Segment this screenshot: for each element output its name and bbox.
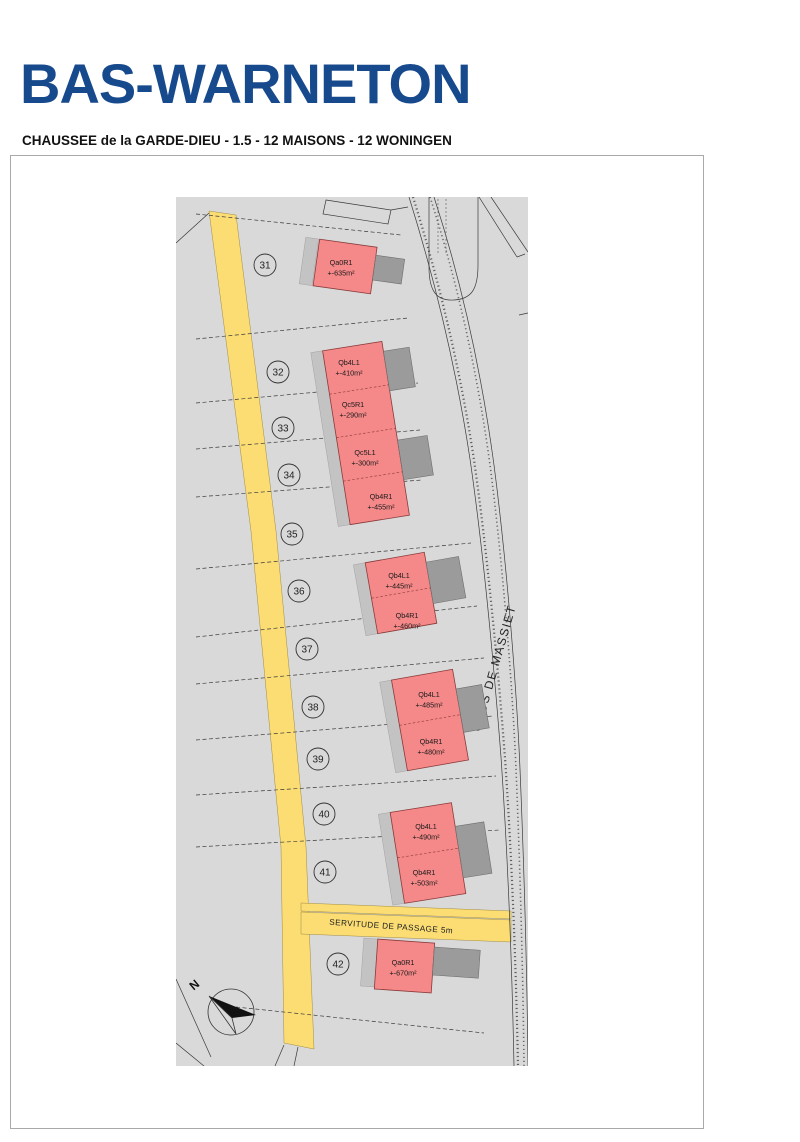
house-label: Qb4L1+-445m² — [386, 571, 414, 591]
house-label: Qc5L1+-300m² — [352, 448, 380, 468]
page-title: BAS-WARNETON — [20, 56, 471, 112]
site-plan: SERVITUDE DE PASSAGE 5m — [176, 197, 528, 1066]
lot-number: 40 — [318, 810, 330, 821]
house-label: Qa0R1+-670m² — [390, 958, 418, 978]
plan-frame: SERVITUDE DE PASSAGE 5m — [10, 155, 704, 1129]
garage-block — [432, 947, 480, 978]
lot-number: 33 — [277, 424, 289, 435]
lot-number: 35 — [286, 530, 298, 541]
lot-number: 37 — [301, 645, 313, 656]
house-label: Qa0R1+-635m² — [328, 258, 356, 278]
garage-block — [398, 435, 434, 479]
garage-block — [372, 255, 404, 284]
lot-number: 42 — [332, 960, 344, 971]
page-subtitle: CHAUSSEE de la GARDE-DIEU - 1.5 - 12 MAI… — [22, 133, 452, 148]
lot-number: 34 — [283, 471, 295, 482]
page: BAS-WARNETON CHAUSSEE de la GARDE-DIEU -… — [0, 0, 800, 1142]
lot-number: 39 — [312, 755, 324, 766]
house-label: Qb4L1+-485m² — [416, 690, 444, 710]
lot-number: 38 — [307, 703, 319, 714]
house-label: Qb4L1+-410m² — [336, 358, 364, 378]
lot-number: 41 — [319, 868, 331, 879]
lot-number: 32 — [272, 368, 284, 379]
house-label: Qb4R1+-480m² — [418, 737, 446, 757]
house-label: Qc5R1+-290m² — [340, 400, 368, 420]
lot-number: 31 — [259, 261, 271, 272]
garage-block — [426, 556, 466, 603]
house-label: Qb4R1+-455m² — [368, 492, 396, 512]
house-label: Qb4R1+-460m² — [394, 611, 422, 631]
house-label: Qb4L1+-490m² — [413, 822, 441, 842]
house-label: Qb4R1+-503m² — [411, 868, 439, 888]
lot-number: 36 — [293, 587, 305, 598]
